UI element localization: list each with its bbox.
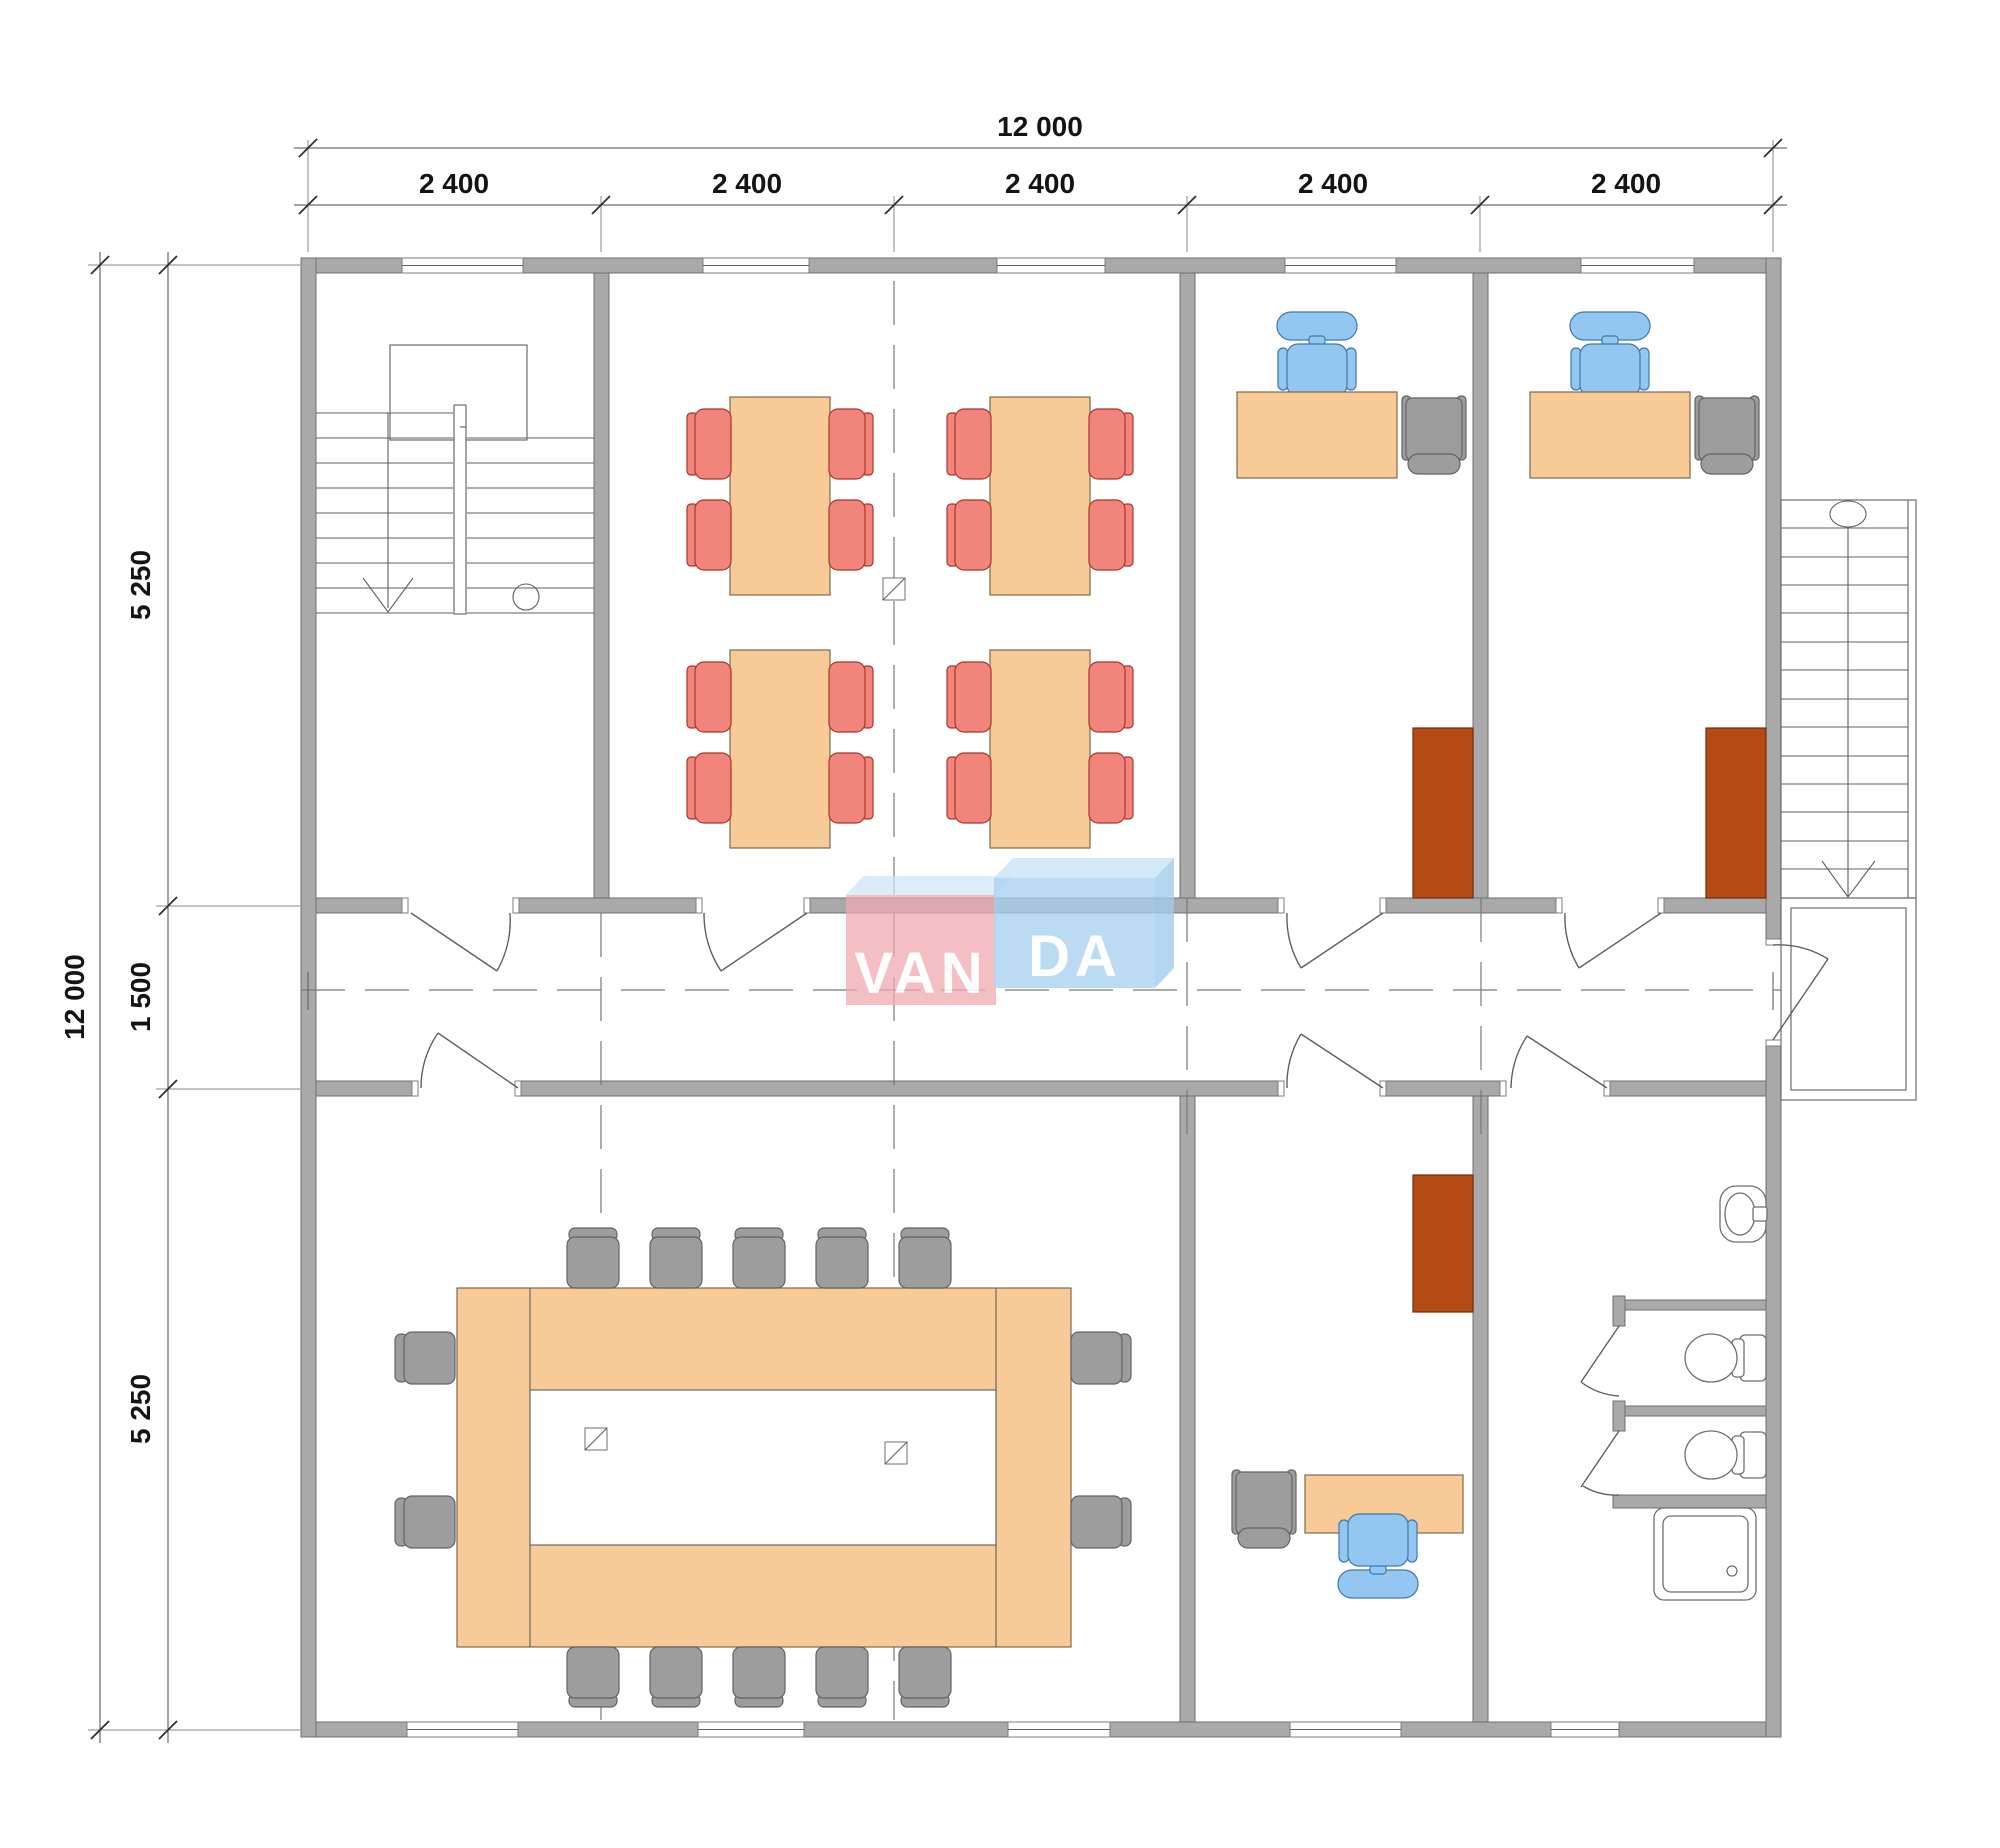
door-office-3 [1287,1034,1383,1088]
office-3 [1232,1175,1473,1598]
bathroom [1654,1186,1767,1600]
dim-top-total: 12 000 [997,111,1083,142]
logo-top-face [994,858,1174,878]
door-office-2 [1565,913,1661,968]
office-chair-icon [1277,312,1357,396]
visitor-chair-icon [1695,396,1759,474]
office-chair-icon [1338,1514,1418,1598]
dining-chair-icon [829,662,873,732]
door-wc-stall-1 [1581,1326,1619,1396]
window-icon [703,258,809,273]
dim-top-seg: 2 400 [712,168,782,199]
dining-chair-icon [947,662,991,732]
column-symbol [585,1428,607,1450]
office-1 [1237,312,1473,898]
stair-post-icon [1830,501,1866,527]
dining-chair-icon [1089,753,1133,823]
sink-icon [1720,1186,1767,1242]
conference-chair-icon [733,1228,785,1288]
window-icon [1551,1722,1619,1737]
conference-chair-icon [395,1332,455,1384]
dining-room [687,397,1133,848]
conference-table-opening [530,1390,996,1545]
dim-left-seg: 5 250 [125,550,156,620]
dim-left-total: 12 000 [59,954,90,1040]
dining-chair-icon [1089,500,1133,570]
dim-left-seg: 1 500 [125,962,156,1032]
door-dining-room [704,913,807,971]
logo-top-face [846,876,1013,895]
window-icon [407,1722,518,1737]
conference-chair-icon [1071,1332,1131,1384]
dining-chair-icon [829,500,873,570]
dining-chair-icon [947,409,991,479]
door-stair-room [411,913,510,971]
conference-chair-icon [567,1647,619,1707]
cabinet [1706,728,1766,898]
window-icon [997,258,1105,273]
cabinet [1413,728,1473,898]
column-symbol [883,578,905,600]
conference-chair-icon [899,1228,951,1288]
conference-chair-icon [395,1496,455,1548]
office-chair-icon [1570,312,1650,396]
visitor-chair-icon [1232,1470,1296,1548]
logo-text-left: VAN [854,941,987,1006]
conference-chair-icon [650,1228,702,1288]
dim-top-seg: 2 400 [1591,168,1661,199]
staircase-exterior [1781,500,1916,1100]
dining-chair-icon [829,753,873,823]
door-wc-stall-2 [1581,1431,1619,1495]
conference-chair-icon [650,1647,702,1707]
door-bathroom [1511,1036,1607,1088]
window-icon [1008,1722,1110,1737]
dining-chair-icon [1089,409,1133,479]
dimension-block-top: 12 000 2 400 2 400 2 400 2 400 2 400 [294,111,1787,252]
dimension-block-left: 12 000 5 250 1 500 5 250 [59,252,300,1743]
dining-table [730,650,830,848]
toilet-icon [1685,1334,1766,1382]
shower-icon [1654,1508,1756,1600]
logo-text-right: DA [1028,924,1122,989]
dining-chair-icon [1089,662,1133,732]
conference-chair-icon [567,1228,619,1288]
dining-chair-icon [947,753,991,823]
door-office-1 [1287,913,1383,968]
floor-plan-page: 12 000 2 400 2 400 2 400 2 400 2 400 12 … [0,0,2000,1848]
desk [1237,392,1397,478]
floor-plan-canvas: 12 000 2 400 2 400 2 400 2 400 2 400 12 … [0,0,2000,1848]
dim-left-seg: 5 250 [125,1374,156,1444]
window-icon [1285,258,1396,273]
window-icon [1581,258,1694,273]
dining-chair-icon [687,662,731,732]
vanda-logo: VAN DA [846,858,1174,1006]
dining-chair-icon [687,409,731,479]
conference-chair-icon [1071,1496,1131,1548]
dining-table [730,397,830,595]
cabinet [1413,1175,1473,1312]
meeting-room [395,1228,1131,1707]
toilet-icon [1685,1431,1766,1479]
conference-chair-icon [816,1647,868,1707]
dim-top-seg: 2 400 [419,168,489,199]
visitor-chair-icon [1402,396,1466,474]
logo-side-face [1155,858,1174,988]
dim-top-seg: 2 400 [1005,168,1075,199]
dining-table [990,397,1090,595]
window-icon [402,258,523,273]
dim-top-seg: 2 400 [1298,168,1368,199]
dining-chair-icon [947,500,991,570]
window-icon [1290,1722,1401,1737]
door-meeting-room [421,1033,518,1088]
window-icon [698,1722,804,1737]
office-2 [1530,312,1766,898]
conference-chair-icon [816,1228,868,1288]
staircase-interior [316,345,594,614]
dining-chair-icon [687,753,731,823]
dining-chair-icon [829,409,873,479]
column-symbol [885,1442,907,1464]
conference-chair-icon [733,1647,785,1707]
dining-chair-icon [687,500,731,570]
conference-chair-icon [899,1647,951,1707]
dining-table [990,650,1090,848]
desk [1530,392,1690,478]
